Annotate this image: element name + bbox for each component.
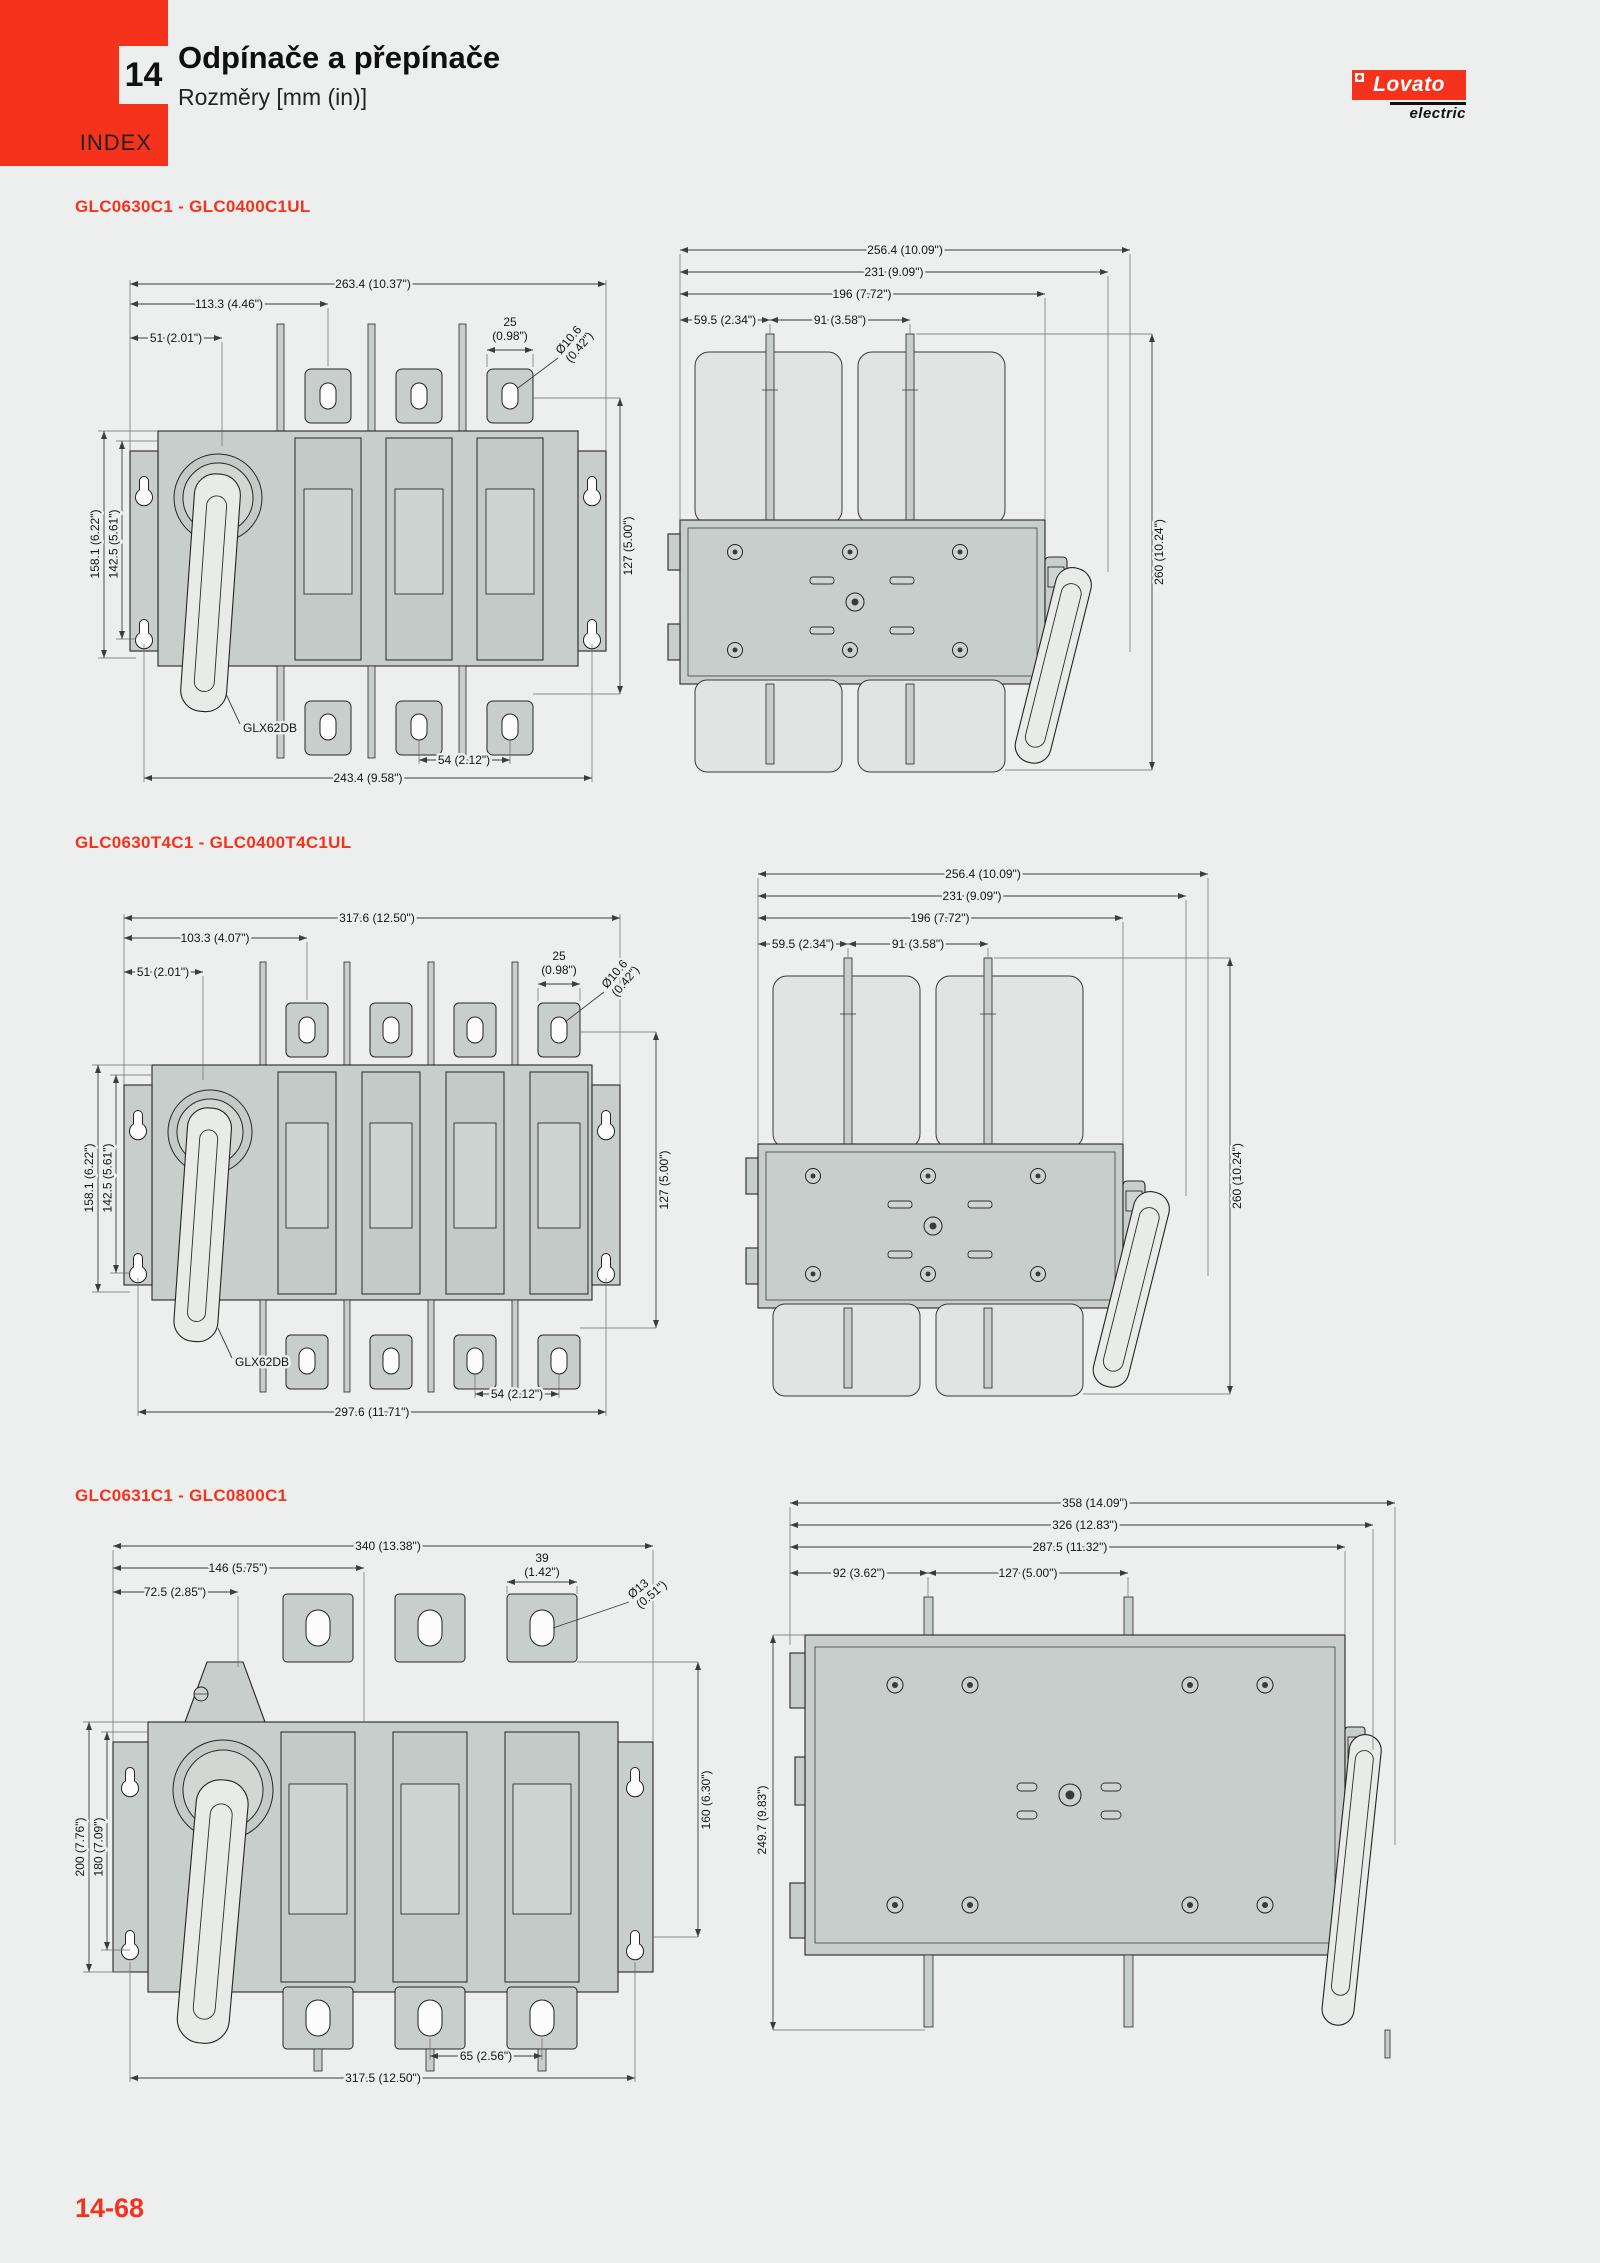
device-top-view [668, 334, 1095, 772]
lovato-logo: Lovato electric [1352, 70, 1466, 122]
drawing-glc0630c1-top-view: 256.4 (10.09") 231 (9.09") 196 (7.72") 5… [660, 222, 1170, 782]
dim-depth-overall: 256.4 (10.09") [867, 243, 943, 257]
drawing-glc0630t4c1-front-view: 317.6 (12.50") 103.3 (4.07") 51 (2.01") … [82, 880, 702, 1425]
dim-pole1-offset: 103.3 (4.07") [181, 931, 250, 945]
dim-pad-pitch: 91 (3.58") [814, 313, 866, 327]
section-heading-glc0630t4c1: GLC0630T4C1 - GLC0400T4C1UL [75, 833, 351, 853]
dim-tab-width-in: (0.98") [541, 963, 577, 977]
device-front-4pole [124, 962, 620, 1392]
dim-pole-pitch: 65 (2.56") [460, 2049, 512, 2063]
handle-part-label: GLX62DB [235, 1355, 289, 1369]
dim-width-overall: 260 (10.24") [1230, 1143, 1244, 1209]
dim-height-mounting: 142.5 (5.61") [101, 1144, 115, 1213]
dim-pad-pitch: 91 (3.58") [892, 937, 944, 951]
index-label[interactable]: INDEX [0, 130, 152, 156]
dim-depth-handle: 231 (9.09") [865, 265, 924, 279]
drawing-glc0631c1-side-view: 358 (14.09") 326 (12.83") 287.5 (11.32")… [745, 1485, 1415, 2065]
dim-width-overall: 249.7 (9.83") [755, 1786, 769, 1855]
dim-height-mounting: 180 (7.09") [92, 1818, 106, 1877]
dim-mounting-width: 243.4 (9.58") [334, 771, 403, 785]
dim-handle-offset: 72.5 (2.85") [144, 1585, 206, 1599]
dim-depth-body: 287.5 (11.32") [1033, 1540, 1108, 1554]
dim-depth-body: 196 (7.72") [911, 911, 970, 925]
dim-mounting-width: 317.5 (12.50") [345, 2071, 421, 2085]
dim-tab-width-in: (1.42") [524, 1565, 560, 1579]
page-number: 14-68 [75, 2193, 144, 2224]
dim-depth-overall: 358 (14.09") [1062, 1496, 1128, 1510]
dim-handle-offset: 51 (2.01") [137, 965, 189, 979]
logo-brand: Lovato [1373, 73, 1445, 97]
dim-overall-width: 340 (13.38") [355, 1539, 421, 1553]
device-front-3pole [130, 324, 606, 758]
section-heading-glc0630c1: GLC0630C1 - GLC0400C1UL [75, 197, 311, 217]
dim-height-overall: 158.1 (6.22") [88, 510, 102, 579]
dim-overall-width: 317.6 (12.50") [339, 911, 415, 925]
dim-tab-width-mm: 39 [535, 1551, 549, 1565]
dim-depth-body: 196 (7.72") [833, 287, 892, 301]
dim-pole1-offset: 113.3 (4.46") [195, 297, 263, 311]
section-heading-glc0631c1: GLC0631C1 - GLC0800C1 [75, 1486, 287, 1506]
dim-height-overall: 200 (7.76") [73, 1818, 87, 1877]
dim-tab-width-mm: 25 [552, 949, 566, 963]
device-front-3pole-large [113, 1594, 653, 2071]
dim-pole-pitch: 54 (2.12") [491, 1387, 543, 1401]
dim-pad-offset: 59.5 (2.34") [772, 937, 834, 951]
dim-pad-offset: 59.5 (2.34") [694, 313, 756, 327]
dim-depth-handle: 231 (9.09") [943, 889, 1002, 903]
logo-mark-icon [1355, 73, 1364, 82]
handle-part-label: GLX62DB [243, 721, 297, 735]
page-title: Odpínače a přepínače [178, 40, 500, 76]
dim-pole1-offset: 146 (5.75") [209, 1561, 268, 1575]
chapter-number-tab: 14 [119, 46, 168, 104]
catalog-page: 14 INDEX Odpínače a přepínače Rozměry [m… [0, 0, 1600, 2263]
dim-handle-offset: 51 (2.01") [150, 331, 202, 345]
dim-terminal-span: 127 (5.00") [621, 517, 635, 576]
dim-depth-overall: 256.4 (10.09") [945, 867, 1021, 881]
device-top-view [746, 958, 1173, 1396]
dim-pad-pitch: 127 (5.00") [999, 1566, 1058, 1580]
dim-depth-handle: 326 (12.83") [1052, 1518, 1118, 1532]
page-subtitle: Rozměry [mm (in)] [178, 84, 367, 111]
dim-mounting-width: 297.6 (11.71") [335, 1405, 410, 1419]
dim-terminal-span: 127 (5.00") [657, 1151, 671, 1210]
dim-height-overall: 158.1 (6.22") [82, 1144, 96, 1213]
dim-width-overall: 260 (10.24") [1152, 519, 1166, 585]
drawing-glc0630t4c1-top-view: 256.4 (10.09") 231 (9.09") 196 (7.72") 5… [738, 846, 1248, 1406]
dim-terminal-span: 160 (6.30") [699, 1771, 713, 1830]
logo-electric: electric [1390, 102, 1466, 122]
dim-height-mounting: 142.5 (5.61") [107, 510, 121, 579]
device-side-view [790, 1597, 1390, 2058]
dim-tab-width-mm: 25 [503, 315, 517, 329]
dim-overall-width: 263.4 (10.37") [335, 277, 411, 291]
dim-tab-width-in: (0.98") [492, 329, 528, 343]
drawing-glc0630c1-front-view: 263.4 (10.37") 113.3 (4.46") 51 (2.01") … [88, 246, 643, 791]
dim-pad-offset: 92 (3.62") [833, 1566, 885, 1580]
drawing-glc0631c1-front-view: 340 (13.38") 146 (5.75") 72.5 (2.85") 39… [73, 1532, 733, 2092]
dim-pole-pitch: 54 (2.12") [438, 753, 490, 767]
logo-box: Lovato [1352, 70, 1466, 100]
